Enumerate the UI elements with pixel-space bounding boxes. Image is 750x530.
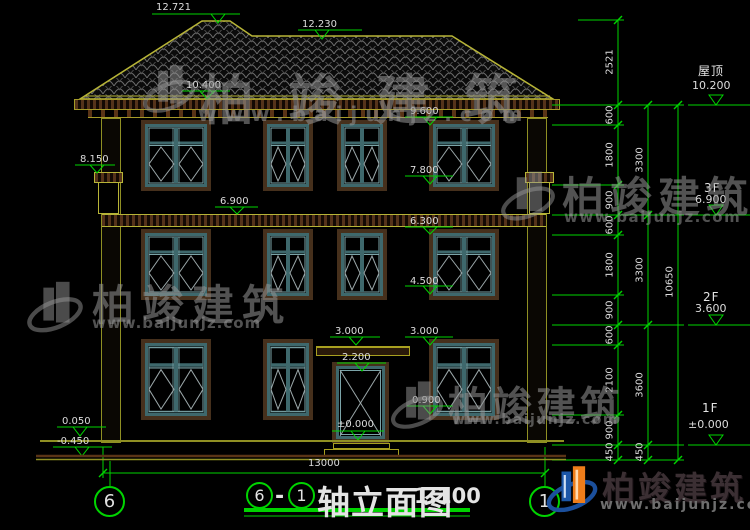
level-label: 3.000 bbox=[335, 326, 364, 337]
dim-text: 900 bbox=[605, 300, 616, 319]
overall-dimension: 13000 bbox=[308, 458, 340, 469]
level-label: 10.400 bbox=[186, 80, 221, 91]
floor-elev: 10.200 bbox=[692, 79, 731, 92]
level-label: 2.200 bbox=[342, 352, 371, 363]
title-axis-start: 6 bbox=[246, 482, 273, 509]
floor-elev: 3.600 bbox=[695, 302, 727, 315]
dim-text: 600 bbox=[605, 105, 616, 124]
level-label: 0.900 bbox=[412, 395, 441, 406]
dim-text: 600 bbox=[605, 215, 616, 234]
level-label: ±0.000 bbox=[337, 419, 374, 430]
dim-text: 900 bbox=[605, 420, 616, 439]
floor-name: 1F bbox=[702, 401, 719, 415]
floor-name: 屋顶 bbox=[698, 62, 724, 79]
level-label: 8.150 bbox=[80, 154, 109, 165]
title-axis-end: 1 bbox=[288, 482, 315, 509]
title-separator: - bbox=[275, 484, 284, 509]
level-label: 0.050 bbox=[62, 416, 91, 427]
elevation-drawing: 12.721 12.230 10.400 9.600 8.150 6.900 7… bbox=[0, 0, 750, 530]
dim-text: 600 bbox=[605, 325, 616, 344]
baijun-logo-icon bbox=[544, 460, 600, 518]
floor-elev: ±0.000 bbox=[688, 418, 729, 431]
dim-text: 450 bbox=[635, 442, 646, 461]
level-label: 6.900 bbox=[220, 196, 249, 207]
level-label: 7.800 bbox=[410, 165, 439, 176]
dim-text: 900 bbox=[605, 190, 616, 209]
level-label: 4.500 bbox=[410, 276, 439, 287]
drawing-scale: 1:100 bbox=[414, 484, 481, 508]
axis-bubble-left: 6 bbox=[94, 486, 125, 517]
level-label: 12.230 bbox=[302, 19, 337, 30]
dim-text: 450 bbox=[605, 442, 616, 461]
dim-text: 3300 bbox=[635, 147, 646, 172]
dim-text: 1800 bbox=[605, 142, 616, 167]
floor-elev: 6.900 bbox=[695, 193, 727, 206]
dim-text: 2100 bbox=[605, 367, 616, 392]
dim-text: 3600 bbox=[635, 372, 646, 397]
level-label: -0.450 bbox=[57, 436, 89, 447]
dim-text: 1800 bbox=[605, 252, 616, 277]
dim-text: 10650 bbox=[665, 266, 676, 298]
dim-text: 2521 bbox=[605, 49, 616, 74]
level-label: 9.600 bbox=[410, 106, 439, 117]
level-label: 12.721 bbox=[156, 2, 191, 13]
level-label: 6.300 bbox=[410, 216, 439, 227]
baijun-logo-url: www.baijunjz.com bbox=[600, 497, 750, 513]
dim-text: 3300 bbox=[635, 257, 646, 282]
level-label: 3.000 bbox=[410, 326, 439, 337]
